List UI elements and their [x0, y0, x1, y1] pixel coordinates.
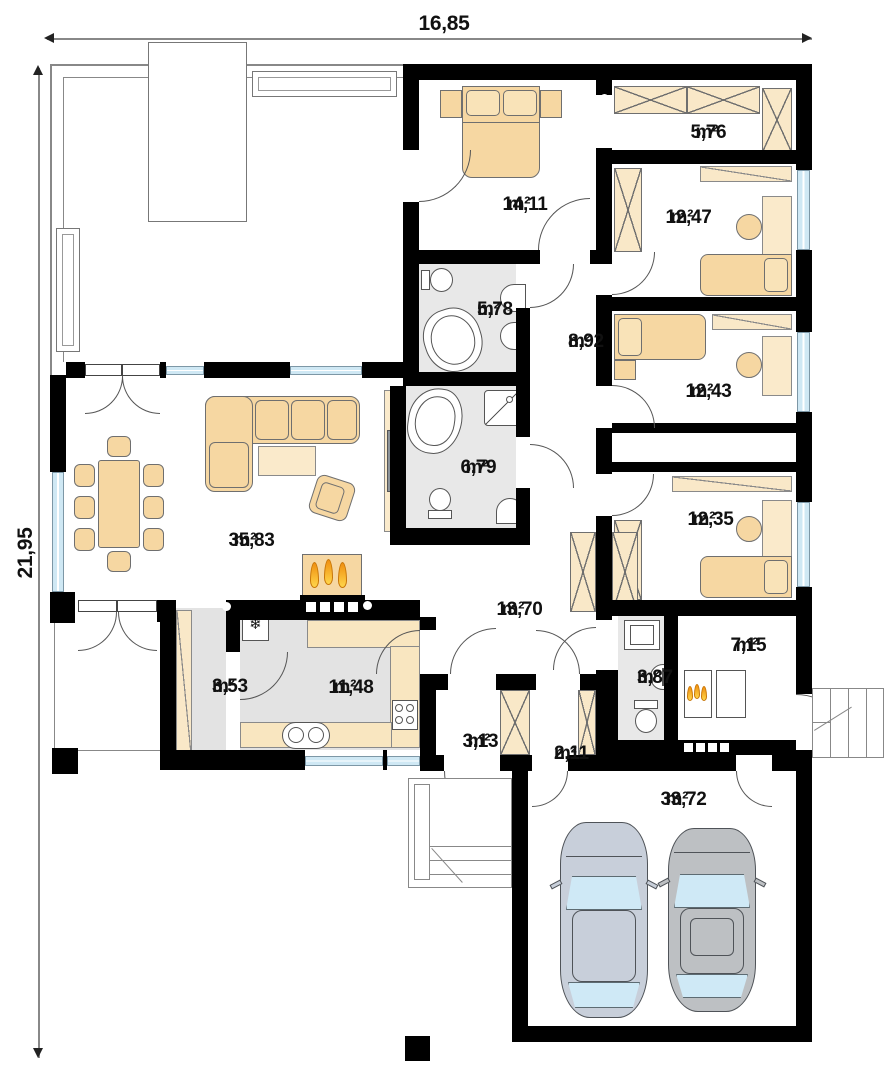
toilet-bowl	[635, 709, 657, 733]
hinge-dot	[222, 602, 231, 611]
door-swing-arc	[530, 444, 574, 488]
wardrobe	[762, 88, 792, 152]
room-label-corridor: 13,70 m²	[497, 600, 502, 620]
wall-segment	[516, 308, 530, 437]
wardrobe	[500, 690, 530, 755]
toilet	[421, 270, 430, 290]
car-rear-window	[676, 974, 748, 998]
door-swing-arc	[530, 264, 574, 308]
wall-segment	[362, 362, 403, 378]
plan-detail: m²	[233, 531, 256, 551]
wall-segment	[596, 64, 612, 95]
wall-dot	[490, 372, 499, 381]
boiler-inner	[630, 625, 654, 645]
plan-detail	[414, 784, 430, 880]
wall-segment	[596, 428, 612, 474]
plan-detail	[258, 77, 391, 91]
wardrobe	[614, 86, 687, 114]
door-swing-arc	[612, 385, 655, 428]
plan-detail: m²	[665, 790, 688, 810]
pillow	[618, 318, 642, 356]
wall-segment	[50, 375, 66, 472]
plan-detail: m²	[507, 195, 530, 215]
burner	[406, 704, 414, 712]
plan-detail	[320, 602, 330, 612]
dining-chair	[143, 464, 164, 487]
room-label-entry: 3,13 m²	[463, 732, 468, 752]
window	[52, 472, 64, 592]
room-label-living: 35,83 m²	[229, 531, 234, 551]
burner	[395, 716, 403, 724]
sofa-cushion	[327, 400, 357, 440]
pillow	[466, 90, 500, 116]
arrow-up-icon	[33, 65, 43, 75]
wall-segment	[516, 488, 530, 530]
shelf	[712, 314, 792, 330]
wall-segment	[420, 617, 436, 630]
dining-chair	[107, 436, 131, 457]
wall-segment	[405, 1036, 430, 1061]
shower-drain	[506, 396, 513, 403]
plan-detail: m²	[333, 678, 356, 698]
wall-segment	[596, 670, 618, 757]
wall-segment	[436, 755, 444, 771]
wall-segment	[796, 412, 812, 502]
room-label-wardrobe: 5,76 m²	[691, 123, 696, 143]
outline-line	[50, 64, 52, 375]
wall-segment	[772, 755, 796, 771]
outline-line	[566, 856, 642, 857]
car-windshield	[674, 874, 750, 908]
wall-segment	[568, 755, 736, 771]
room-label-garage: 33,72 m²	[661, 790, 666, 810]
wall-segment	[404, 528, 530, 545]
window	[387, 756, 420, 766]
car-windshield	[566, 876, 642, 910]
desk-chair	[736, 516, 762, 542]
wall-segment	[512, 755, 532, 771]
plan-detail: m²	[690, 382, 713, 402]
plan-detail: m²	[477, 300, 500, 320]
dining-chair	[74, 496, 95, 519]
shelf	[700, 166, 792, 182]
hinge-dot	[363, 601, 372, 610]
arrow-left-icon	[44, 33, 54, 43]
door-swing-arc	[450, 628, 496, 674]
coffee-table	[258, 446, 316, 476]
wall-segment	[160, 750, 305, 770]
plan-detail: m²	[692, 510, 715, 530]
wall-segment	[403, 64, 419, 150]
nightstand	[614, 360, 636, 380]
door-swing-arc	[122, 376, 160, 414]
nightstand	[540, 90, 562, 118]
outline-line	[830, 688, 831, 758]
room-label-room1: 12,47 m²	[666, 208, 671, 228]
desk	[762, 196, 792, 256]
plan-detail: m²	[467, 732, 490, 752]
wall-segment	[796, 750, 812, 1042]
wall-segment	[403, 250, 540, 264]
wardrobe	[687, 86, 760, 114]
outline-line	[430, 874, 512, 875]
room-label-room3: 12,35 m²	[688, 510, 693, 530]
outline-line	[430, 846, 512, 847]
desk-chair	[736, 214, 762, 240]
shelf	[672, 476, 792, 492]
door-leaf	[122, 364, 160, 376]
toilet-bowl	[429, 488, 451, 511]
wall-segment	[796, 64, 812, 170]
plan-detail: m²	[212, 677, 235, 697]
vent-grill	[684, 743, 693, 752]
wall-segment	[596, 516, 612, 620]
pillow	[503, 90, 537, 116]
wall-segment	[390, 386, 406, 545]
dining-chair	[74, 464, 95, 487]
window	[797, 502, 810, 587]
plan-detail: m²	[554, 744, 577, 764]
wall-segment	[612, 150, 796, 164]
outline-line	[674, 852, 750, 853]
dimension-line-top	[47, 38, 812, 40]
dining-chair	[143, 528, 164, 551]
wardrobe	[570, 532, 596, 612]
wall-segment	[496, 674, 536, 690]
window	[290, 366, 362, 375]
plan-detail	[720, 743, 729, 752]
floor-plan: 16,85 21,95	[0, 0, 896, 1080]
plan-detail: m²	[637, 668, 660, 688]
door-leaf	[78, 600, 117, 612]
plan-detail: m²	[465, 458, 488, 478]
flame-icon	[701, 686, 707, 701]
door-swing-arc	[78, 612, 117, 651]
dimension-line-left	[38, 68, 40, 1058]
arrow-down-icon	[33, 1048, 43, 1058]
wall-segment	[796, 587, 812, 694]
pillow	[764, 258, 788, 292]
sink-bowl	[308, 727, 324, 743]
plan-detail	[334, 602, 344, 612]
window	[305, 756, 383, 766]
toilet-bowl	[430, 268, 453, 292]
plan-detail: m²	[695, 123, 718, 143]
car-roof	[572, 910, 636, 982]
sofa-cushion	[291, 400, 325, 440]
pillow	[764, 560, 788, 594]
plan-detail: m²	[501, 600, 524, 620]
wall-segment	[160, 608, 176, 757]
dining-table	[98, 460, 140, 548]
wall-segment	[596, 148, 612, 252]
dining-chair	[74, 528, 95, 551]
sofa-cushion	[209, 442, 249, 488]
wall-segment	[580, 674, 596, 690]
desk	[762, 500, 792, 560]
wall-segment	[50, 592, 75, 623]
hinge-dot	[600, 94, 609, 103]
plan-detail: m²	[568, 332, 591, 352]
window	[166, 366, 204, 375]
wall-segment	[512, 755, 528, 1042]
sink-bowl	[288, 727, 304, 743]
plan-detail	[708, 743, 717, 752]
door-swing-arc	[612, 474, 654, 516]
room-label-kitchen: 11,48 m²	[329, 678, 334, 698]
sofa-cushion	[255, 400, 289, 440]
wall-segment	[204, 362, 290, 378]
plan-detail	[348, 602, 358, 612]
window	[797, 332, 810, 412]
toilet	[428, 510, 452, 519]
hearth-grill	[306, 602, 316, 612]
wall-dot	[474, 372, 483, 381]
plan-detail	[696, 743, 705, 752]
dimension-height: 21,95	[15, 527, 37, 578]
window	[797, 170, 810, 250]
wall-segment	[512, 1026, 812, 1042]
shower	[484, 390, 520, 426]
plan-detail: m²	[670, 208, 693, 228]
wall-segment	[52, 748, 78, 774]
nightstand	[440, 90, 462, 118]
plan-detail: m²	[735, 636, 758, 656]
desk	[762, 336, 792, 396]
outline-line	[463, 122, 539, 123]
wall-segment	[590, 250, 612, 264]
burner	[406, 716, 414, 724]
outline-line	[866, 688, 867, 758]
door-swing-arc	[118, 612, 157, 651]
outline-line	[848, 688, 849, 758]
door-swing-arc	[85, 376, 123, 414]
toilet	[634, 700, 658, 709]
wall-segment	[612, 600, 796, 616]
room-label-room2: 12,43 m²	[686, 382, 691, 402]
plan-detail	[62, 234, 74, 346]
water-tank	[716, 670, 746, 718]
wardrobe	[614, 168, 642, 252]
wall-segment	[500, 755, 512, 771]
car-rear-window	[568, 982, 640, 1008]
wall-segment	[420, 674, 436, 755]
desk-chair	[736, 352, 762, 378]
pantry-shelves	[176, 610, 192, 755]
door-swing-arc	[532, 771, 568, 807]
car-sunroof	[690, 918, 734, 956]
dimension-width: 16,85	[418, 13, 469, 35]
wall-segment	[403, 372, 530, 386]
wall-segment	[796, 250, 812, 332]
room-label-bath2: 6,79 m²	[461, 458, 466, 478]
burner	[395, 704, 403, 712]
door-leaf	[85, 364, 122, 376]
roof-outline	[148, 42, 247, 222]
wall-segment	[618, 740, 796, 755]
room-label-boiler: 7,15 m²	[731, 636, 736, 656]
door-swing-arc	[612, 252, 655, 295]
arrow-right-icon	[802, 33, 812, 43]
dining-chair	[143, 496, 164, 519]
patio-outline	[54, 623, 55, 750]
door-swing-arc	[419, 150, 471, 202]
dining-chair	[107, 551, 131, 572]
wall-segment	[66, 362, 85, 378]
wall-segment	[612, 462, 796, 472]
flame-icon	[687, 686, 693, 701]
wall-segment	[612, 297, 796, 311]
door-swing-arc	[736, 771, 772, 807]
wall-segment	[403, 264, 419, 386]
room-label-bedroom: 14,11 m²	[503, 195, 508, 215]
flame-icon	[694, 684, 700, 699]
door-leaf	[117, 600, 157, 612]
